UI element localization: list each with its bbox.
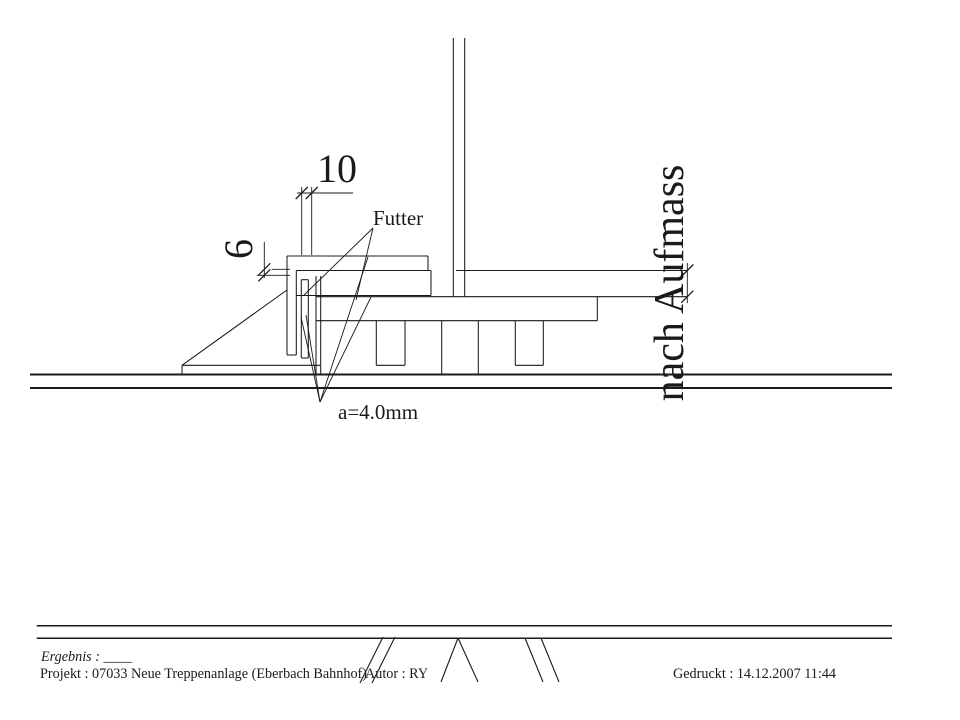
futter-leader-1 (303, 228, 373, 296)
weld-leader-1 (301, 317, 320, 402)
ground-lines (30, 375, 892, 389)
gusset-hypotenuse (182, 290, 287, 365)
footer-printed-label: Gedruckt : 14.12.2007 11:44 (673, 666, 836, 682)
footer-author-label: Autor : RY (365, 666, 428, 682)
technical-drawing-canvas: 106Futtera=4.0mmnach AufmassErgebnis : _… (0, 0, 960, 720)
site-measure-label: nach Aufmass (647, 165, 693, 402)
footer-project-label: Projekt : 07033 Neue Treppenanlage (Eber… (40, 666, 367, 682)
footer-result-label: Ergebnis : ____ (40, 649, 133, 665)
break-mark-vee-left (441, 638, 458, 682)
weld-label: a=4.0mm (338, 400, 418, 424)
weld-leader-3 (320, 257, 368, 402)
weld-leader-4 (320, 297, 371, 402)
steel-structure (182, 38, 687, 375)
dimension-ticks (258, 187, 693, 303)
dimension-lines (257, 187, 688, 303)
break-mark-backslash1 (525, 638, 543, 682)
futter-leader-2 (356, 228, 373, 300)
shim-label: Futter (373, 206, 423, 230)
dim-side-label: 6 (216, 239, 261, 259)
labels: 106Futtera=4.0mmnach AufmassErgebnis : _… (40, 146, 836, 682)
break-mark-vee-right (458, 638, 478, 682)
break-mark-backslash2 (541, 638, 559, 682)
footer-rules (37, 626, 892, 639)
dim-top-label: 10 (317, 146, 357, 191)
drawing-sheet: 106Futtera=4.0mmnach AufmassErgebnis : _… (0, 0, 960, 720)
